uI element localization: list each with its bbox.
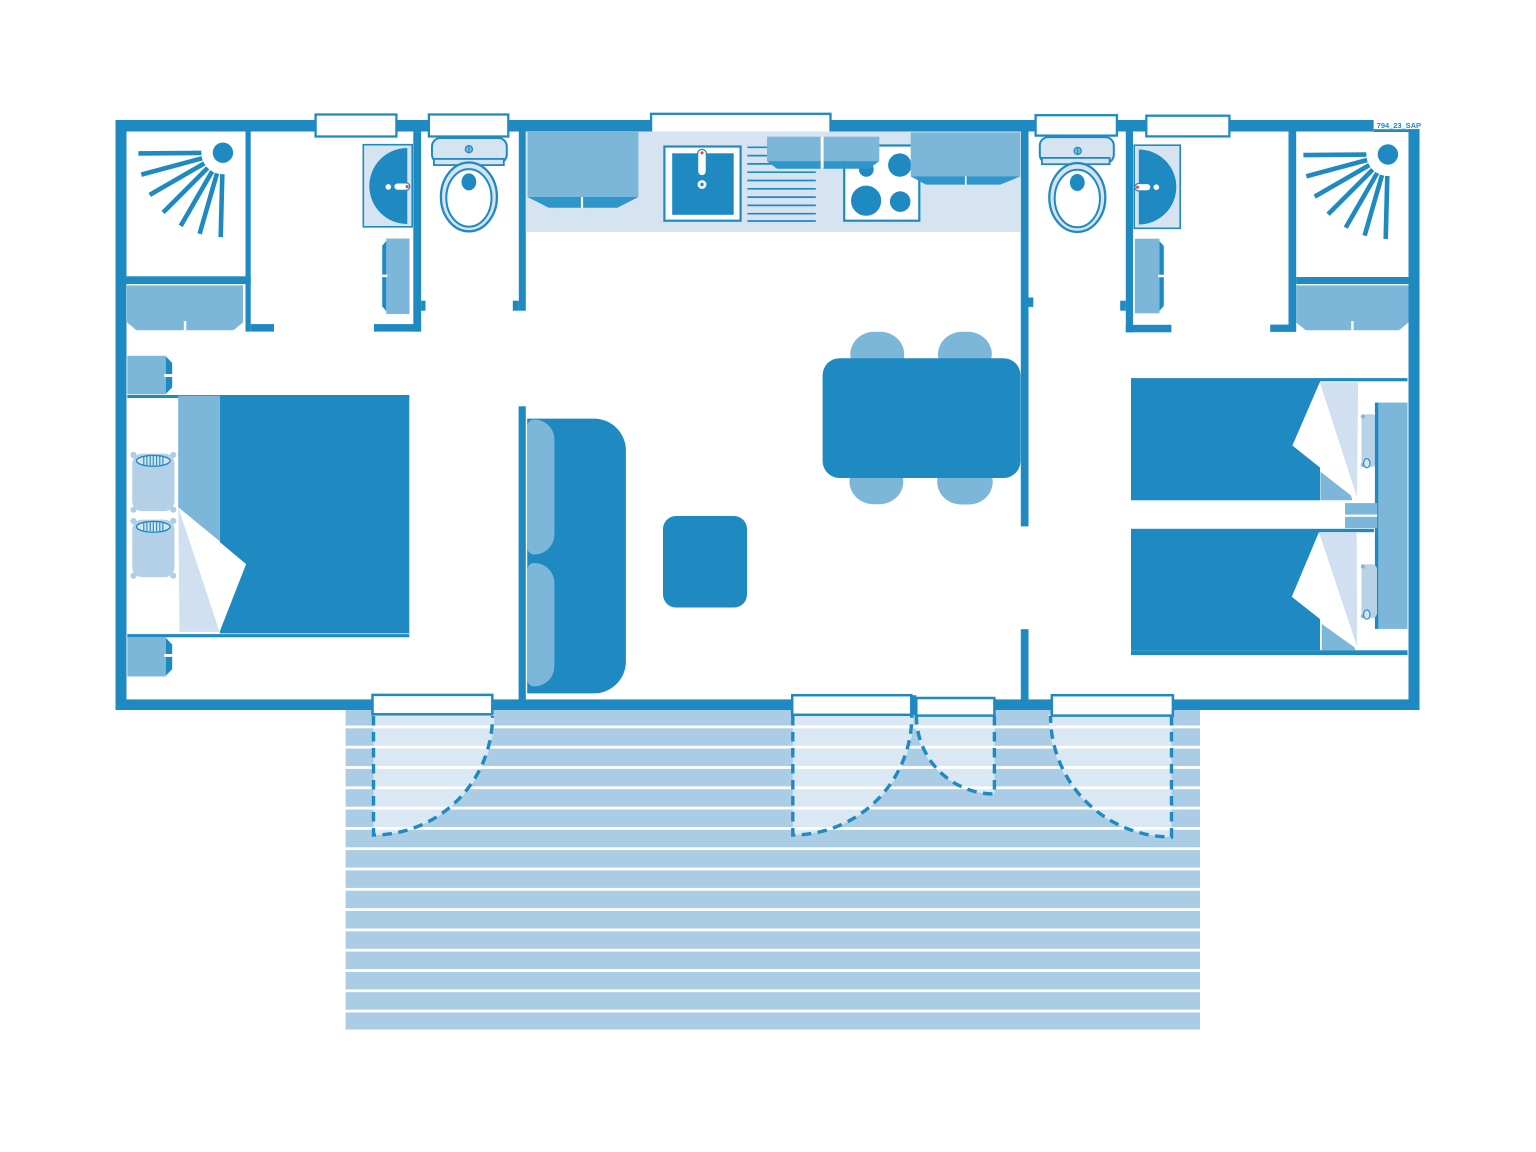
svg-text:794_23_SAP: 794_23_SAP [1377,121,1421,130]
